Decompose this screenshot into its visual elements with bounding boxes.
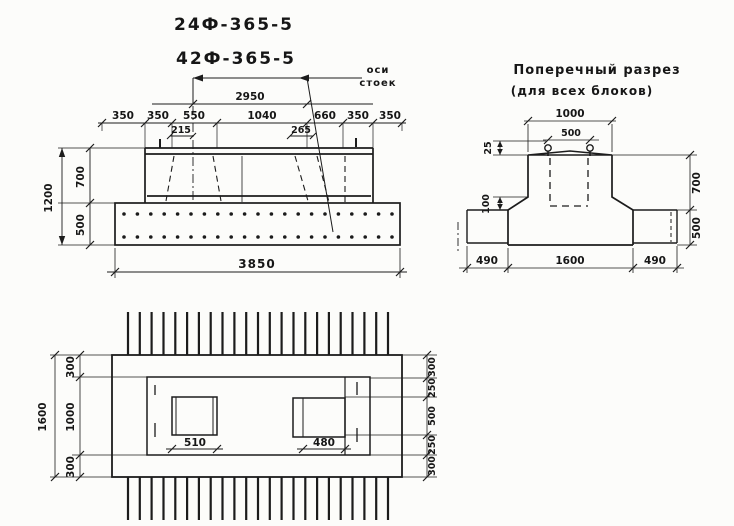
dim-3850-label: 3850 [238, 257, 275, 271]
plan-dim-1000-label: 1000 [65, 402, 77, 431]
elevation-view: оси стоек 2950 350 350 550 1040 660 350 … [43, 65, 407, 278]
cs-dim-490a-label: 490 [476, 255, 498, 267]
cs-pedestal-sides [508, 155, 633, 210]
block-marks: 24Ф-365-5 42Ф-365-5 [174, 15, 296, 69]
axes-arrow-left-icon [193, 75, 203, 82]
elevation-span-dim: 2950 [152, 91, 373, 108]
elevation-slab [115, 203, 400, 245]
cs-dim-500-label: 500 [561, 128, 581, 139]
cs-dim-500b-label: 500 [691, 217, 703, 239]
plan-left-socket-walls [176, 397, 213, 435]
elevation-height-dims: 700 500 1200 [43, 144, 145, 249]
cs-right-wing [633, 210, 677, 243]
elevation-top-dim-row: 350 350 550 1040 660 350 350 [98, 110, 406, 148]
cross-section-title: Поперечный разрез [513, 63, 680, 78]
plan-left-dims: 300 1000 300 1600 [37, 351, 147, 481]
plan-r-dim-250b: 250 [427, 435, 438, 455]
cs-top-surface [528, 151, 612, 155]
elevation-sub-dims: 215 265 [167, 125, 316, 139]
cs-top-dims: 1000 500 [524, 108, 616, 152]
cs-dim-700-label: 700 [691, 172, 703, 194]
cs-slab-outline [508, 210, 633, 245]
plan-r-dim-250a: 250 [427, 378, 438, 398]
dim-1200-label: 1200 [43, 183, 55, 212]
cs-100-arrow-top-icon [497, 197, 503, 203]
plan-r-dim-300b: 300 [427, 456, 438, 476]
plan-rebar-top [128, 312, 388, 355]
lifting-loop-left-icon [545, 145, 551, 151]
block-mark-1: 24Ф-365-5 [174, 15, 294, 35]
cs-dim-1600-label: 1600 [555, 255, 584, 267]
dim-510-label: 510 [184, 437, 206, 449]
cs-height-lines [612, 155, 697, 245]
dim-350-d: 350 [379, 110, 401, 122]
cs-25-arrow-bottom-icon [497, 149, 503, 155]
dim-1200-arrow-bottom-icon [59, 236, 65, 245]
plan-dim-300-top-label: 300 [65, 356, 77, 378]
dim-350-c: 350 [347, 110, 369, 122]
cs-haunch-dim: 100 [481, 194, 528, 214]
plan-view: 510 480 300 1000 300 1600 300 250 500 25… [37, 312, 438, 520]
plan-slab-outline [112, 355, 402, 477]
dim-1200-arrow-top-icon [59, 148, 65, 157]
dim-700-label: 700 [75, 166, 87, 188]
plan-socket-dims: 510 480 [166, 437, 351, 453]
cross-section-subtitle: (для всех блоков) [511, 84, 654, 98]
cs-socket-hidden [550, 158, 588, 206]
plan-dim-300-bottom-label: 300 [65, 456, 77, 478]
cs-crown-dim: 25 [483, 141, 546, 155]
lifting-loop-ticks [160, 138, 356, 148]
span-dim-label: 2950 [235, 91, 264, 103]
dim-660: 660 [314, 110, 336, 122]
plan-right-socket-outline [293, 398, 345, 437]
post-axis-right-slanted [307, 78, 333, 232]
block-outline [145, 148, 373, 203]
plan-right-dims: 300 250 500 250 300 [345, 351, 438, 481]
block-mark-2: 42Ф-365-5 [176, 49, 296, 69]
dim-215-label: 215 [171, 125, 191, 136]
cs-dim-25-label: 25 [483, 141, 494, 154]
dim-350-b: 350 [147, 110, 169, 122]
cs-25-arrow-top-icon [497, 141, 503, 147]
cs-slab [458, 210, 677, 252]
cs-bottom-dims: 490 1600 490 [459, 246, 684, 273]
plan-r-dim-300a: 300 [427, 357, 438, 377]
drawing-sheet: 24Ф-365-5 42Ф-365-5 оси стоек 2950 350 3… [0, 0, 734, 526]
axes-note-line2: стоек [359, 78, 396, 89]
dim-350-a: 350 [112, 110, 134, 122]
cs-left-wing [467, 210, 508, 243]
dim-480-label: 480 [313, 437, 335, 449]
axes-leader-line [193, 78, 362, 104]
dim-265-label: 265 [291, 125, 311, 136]
axes-note: оси стоек [193, 65, 397, 104]
cs-dim-100-label: 100 [481, 194, 492, 214]
cs-dim-490b-label: 490 [644, 255, 666, 267]
plan-r-dim-500: 500 [427, 406, 438, 426]
elevation-width-dim: 3850 [107, 248, 407, 278]
dim-500-label: 500 [75, 214, 87, 236]
dim-550: 550 [183, 110, 205, 122]
dim-1040: 1040 [247, 110, 276, 122]
cs-height-dims: 700 500 [612, 151, 703, 249]
cs-100-arrow-bottom-icon [497, 204, 503, 210]
height-dim-extensions [58, 148, 145, 245]
plan-rebar-bottom [128, 477, 388, 520]
lifting-loop-right-icon [587, 145, 593, 151]
plan-left-socket-outline [172, 397, 217, 435]
technical-drawing: 24Ф-365-5 42Ф-365-5 оси стоек 2950 350 3… [0, 0, 734, 526]
plan-pedestal-outline [147, 377, 370, 455]
cs-dim-1000-label: 1000 [555, 108, 584, 120]
cross-section-view: Поперечный разрез (для всех блоков) 1000… [458, 63, 703, 273]
plan-dim-1600-label: 1600 [37, 402, 49, 431]
axes-note-line1: оси [367, 65, 390, 76]
cs-pedestal [508, 151, 633, 210]
plan-left-socket [155, 385, 217, 437]
